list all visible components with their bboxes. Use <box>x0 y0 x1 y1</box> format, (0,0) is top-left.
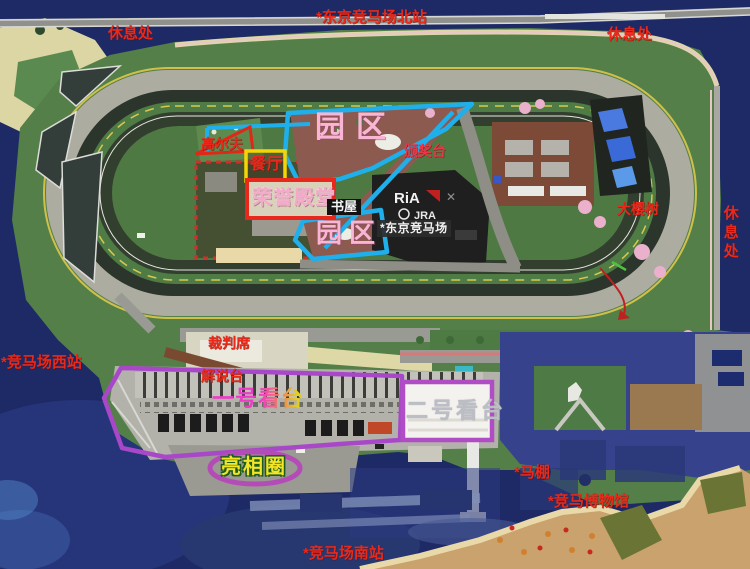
label-park-zone-upper: 园区 <box>315 112 397 144</box>
label-paddock-ring: 亮相圈 <box>221 457 287 478</box>
logo-times: ✕ <box>446 190 456 204</box>
label-north-station: *东京竞马场北站 <box>316 10 427 26</box>
label-big-cherry-tree: 大樱树 <box>617 202 659 217</box>
label-horse-stable: *马棚 <box>514 465 550 481</box>
label-park-zone-lower: 园区 <box>316 220 382 247</box>
label-restaurant: 餐厅 <box>250 157 284 174</box>
label-hall-of-fame: 荣誉殿堂 <box>252 188 336 209</box>
label-racecourse-name: *东京竞马场 <box>377 220 451 237</box>
label-award-stage: 颁奖台 <box>404 144 446 159</box>
label-rest-area-top-left: 休息处 <box>108 26 153 42</box>
label-rest-area-right: 休息处 <box>722 205 738 262</box>
label-golf: 高尔夫 <box>201 137 243 152</box>
label-book-house: 书屋 <box>327 199 361 215</box>
label-south-station: *竞马场南站 <box>303 546 384 562</box>
label-west-station: *竞马场西站 <box>1 355 82 371</box>
logo-ria: RiA <box>394 190 420 207</box>
map-canvas: RiA ✕ JRA <box>0 0 750 569</box>
label-judges-stand: 裁判席 <box>208 336 250 351</box>
label-grandstand-two: 二号看台 <box>406 399 506 422</box>
label-racing-museum: *竞马博物馆 <box>548 494 629 510</box>
racecourse-map: RiA ✕ JRA <box>0 0 750 569</box>
label-rest-area-top-right: 休息处 <box>607 27 652 43</box>
label-commentary-stand: 解说台 <box>201 369 243 384</box>
label-grandstand-one: 一号看台 <box>212 387 304 410</box>
